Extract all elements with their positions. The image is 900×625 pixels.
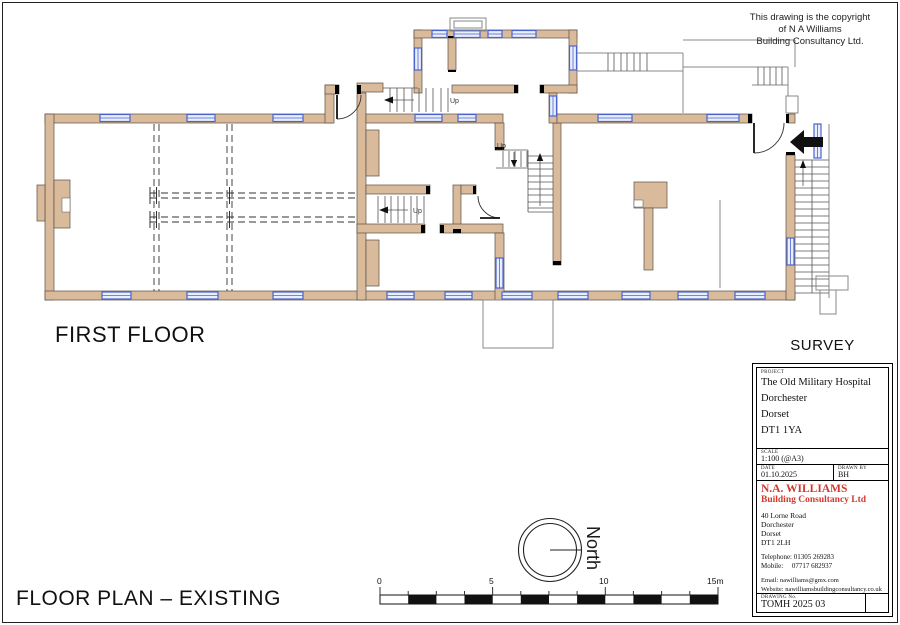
- porch-outline: [483, 300, 553, 348]
- up-label: Up: [413, 208, 422, 215]
- window: [387, 292, 414, 299]
- company-address-line: DT1 2LH: [761, 538, 884, 547]
- window: [415, 48, 422, 70]
- date-value: 01.10.2025: [761, 471, 829, 479]
- scale-tick-5: 5: [489, 576, 494, 586]
- company-telephone: Telephone: 01305 269283: [761, 553, 884, 562]
- company-address-line: Dorset: [761, 529, 884, 538]
- window: [512, 31, 536, 38]
- window: [273, 292, 303, 299]
- copyright-line: Building Consultancy Ltd.: [726, 36, 894, 48]
- stair-central: [496, 150, 553, 212]
- company-address-line: 40 Lorne Road: [761, 511, 884, 520]
- window: [445, 292, 472, 299]
- window: [598, 115, 632, 122]
- title-block-company: N.A. WILLIAMS Building Consultancy Ltd 4…: [756, 480, 889, 594]
- window: [622, 292, 650, 299]
- copyright-line: This drawing is the copyright: [726, 12, 894, 24]
- company-subtitle: Building Consultancy Ltd: [761, 495, 884, 506]
- drawing-no-value: TOMH 2025 03: [761, 600, 861, 610]
- door-middle: [478, 196, 500, 218]
- copyright-note: This drawing is the copyright of N A Wil…: [726, 12, 894, 48]
- bay-window: [450, 18, 486, 31]
- north-arrow: North: [519, 519, 604, 582]
- window: [550, 96, 557, 116]
- floor-label: FIRST FLOOR: [55, 322, 206, 348]
- window: [454, 31, 480, 38]
- title-block-scale: SCALE 1:100 (@A3): [756, 448, 889, 465]
- project-postcode: DT1 1YA: [761, 423, 884, 439]
- window: [570, 46, 577, 70]
- window: [558, 292, 588, 299]
- window: [707, 115, 739, 122]
- company-email: Email: nawilliams@gmx.com: [761, 577, 884, 586]
- window: [488, 31, 502, 38]
- title-block-date-row: DATE 01.10.2025 DRAWN BY BH: [756, 464, 889, 481]
- project-town: Dorchester: [761, 391, 884, 407]
- scale-value: 1:100 (@A3): [761, 455, 884, 463]
- project-county: Dorset: [761, 407, 884, 423]
- drawing-no-cell: DRAWING No. TOMH 2025 03: [757, 594, 865, 612]
- window: [187, 292, 218, 299]
- scale-tick-10: 10: [599, 576, 609, 586]
- drawing-no-empty-cell: [865, 594, 888, 612]
- north-label: North: [583, 526, 603, 570]
- window: [787, 238, 794, 265]
- window: [502, 292, 532, 299]
- project-name: The Old Military Hospital: [761, 375, 884, 391]
- window: [273, 115, 303, 122]
- external-walkway: [577, 40, 798, 113]
- window: [432, 31, 447, 38]
- window: [102, 292, 131, 299]
- drawn-by-value: BH: [838, 471, 884, 479]
- drawn-by-cell: DRAWN BY BH: [833, 465, 888, 480]
- scale-tick-15: 15m: [707, 576, 724, 586]
- window: [496, 258, 503, 288]
- company-address-line: Dorchester: [761, 520, 884, 529]
- window: [735, 292, 765, 299]
- plan-title: FLOOR PLAN – EXISTING: [16, 587, 281, 611]
- scale-tick-0: 0: [377, 576, 382, 586]
- survey-label: SURVEY: [752, 337, 893, 354]
- windows: [100, 31, 821, 300]
- window: [187, 115, 215, 122]
- up-label: Up: [450, 98, 459, 105]
- window: [100, 115, 130, 122]
- ceiling-beam-dashed-lines: [150, 124, 357, 291]
- title-block-project: PROJECT The Old Military Hospital Dorche…: [756, 367, 889, 449]
- date-cell: DATE 01.10.2025: [757, 465, 833, 480]
- scale-bar: 0 5 10 15m: [377, 576, 724, 604]
- drawing-sheet: Up Up Up North 0 5 10 15m This d: [0, 0, 900, 625]
- title-block: PROJECT The Old Military Hospital Dorche…: [752, 363, 893, 617]
- up-label: Up: [497, 143, 506, 150]
- window: [678, 292, 708, 299]
- title-block-drawing-no: DRAWING No. TOMH 2025 03: [756, 593, 889, 613]
- company-mobile: Mobile: 07717 682937: [761, 562, 884, 571]
- window: [458, 115, 476, 122]
- door-entrance: [754, 123, 784, 153]
- company-name: N.A. WILLIAMS: [761, 483, 884, 495]
- window: [415, 115, 442, 122]
- copyright-line: of N A Williams: [726, 24, 894, 36]
